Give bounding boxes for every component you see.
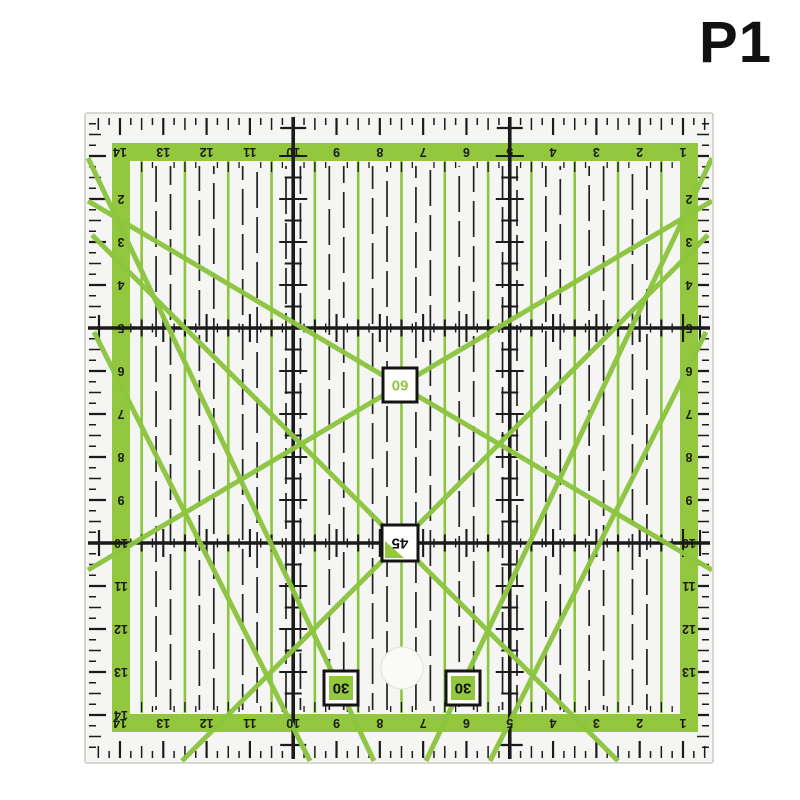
scale-number: 10 <box>114 536 128 550</box>
scale-number: 9 <box>333 145 340 159</box>
scale-number: 6 <box>685 364 692 378</box>
scale-number: 6 <box>463 716 470 730</box>
angle-box-45: 45 <box>382 525 418 561</box>
scale-number: 9 <box>685 493 692 507</box>
scale-number: 2 <box>636 716 643 730</box>
angle-label: 30 <box>333 680 350 697</box>
scale-number: 5 <box>685 321 692 335</box>
angle-label: 60 <box>392 377 409 394</box>
scale-number: 2 <box>117 192 124 206</box>
scale-number: 6 <box>463 145 470 159</box>
scale-number: 4 <box>550 716 557 730</box>
scale-number: 13 <box>114 665 128 679</box>
scale-number: 12 <box>114 622 128 636</box>
scale-number: 10 <box>286 716 300 730</box>
scale-number: 12 <box>200 716 214 730</box>
scale-number: 14 <box>114 708 128 722</box>
angle-box-60: 60 <box>383 368 417 402</box>
photo-label: P1 <box>652 14 772 72</box>
scale-number: 14 <box>113 145 127 159</box>
scale-number: 11 <box>243 145 256 159</box>
scale-number: 10 <box>286 145 300 159</box>
scale-number: 2 <box>636 145 643 159</box>
scale-number: 5 <box>506 145 513 159</box>
scale-number: 12 <box>200 145 214 159</box>
scale-number: 13 <box>156 716 170 730</box>
scale-number: 3 <box>593 716 600 730</box>
angle-box-30-left: 30 <box>324 671 358 705</box>
angle-label: 30 <box>455 680 472 697</box>
scale-number: 4 <box>550 145 557 159</box>
scale-number: 8 <box>685 450 692 464</box>
angle-box-30-right: 30 <box>446 671 480 705</box>
scale-number: 9 <box>117 493 124 507</box>
scale-number: 4 <box>685 278 692 292</box>
scale-number: 4 <box>117 278 124 292</box>
scale-number: 7 <box>420 145 427 159</box>
scale-number: 8 <box>376 716 383 730</box>
scale-number: 8 <box>117 450 124 464</box>
product-photo: P1 6045303014131211109876543211413121110… <box>0 0 800 800</box>
scale-number: 11 <box>243 716 256 730</box>
scale-number: 5 <box>506 716 513 730</box>
scale-number: 13 <box>682 665 696 679</box>
scale-number: 1 <box>679 145 686 159</box>
scale-number: 12 <box>682 622 696 636</box>
scale-number: 3 <box>117 235 124 249</box>
scale-number: 2 <box>685 192 692 206</box>
scale-number: 7 <box>117 407 124 421</box>
scale-number: 7 <box>420 716 427 730</box>
scale-number: 3 <box>593 145 600 159</box>
scale-number: 1 <box>679 716 686 730</box>
scale-number: 9 <box>333 716 340 730</box>
scale-number: 13 <box>156 145 170 159</box>
scale-number: 8 <box>376 145 383 159</box>
angle-label: 45 <box>392 535 409 552</box>
scale-number: 11 <box>682 579 695 593</box>
scale-number: 10 <box>682 536 696 550</box>
scale-number: 3 <box>685 235 692 249</box>
scale-number: 5 <box>117 321 124 335</box>
scale-number: 6 <box>117 364 124 378</box>
quilting-ruler: 6045303014131211109876543211413121110987… <box>0 0 800 800</box>
scale-number: 7 <box>685 407 692 421</box>
scale-number: 11 <box>114 579 127 593</box>
hanging-hole <box>381 647 423 689</box>
